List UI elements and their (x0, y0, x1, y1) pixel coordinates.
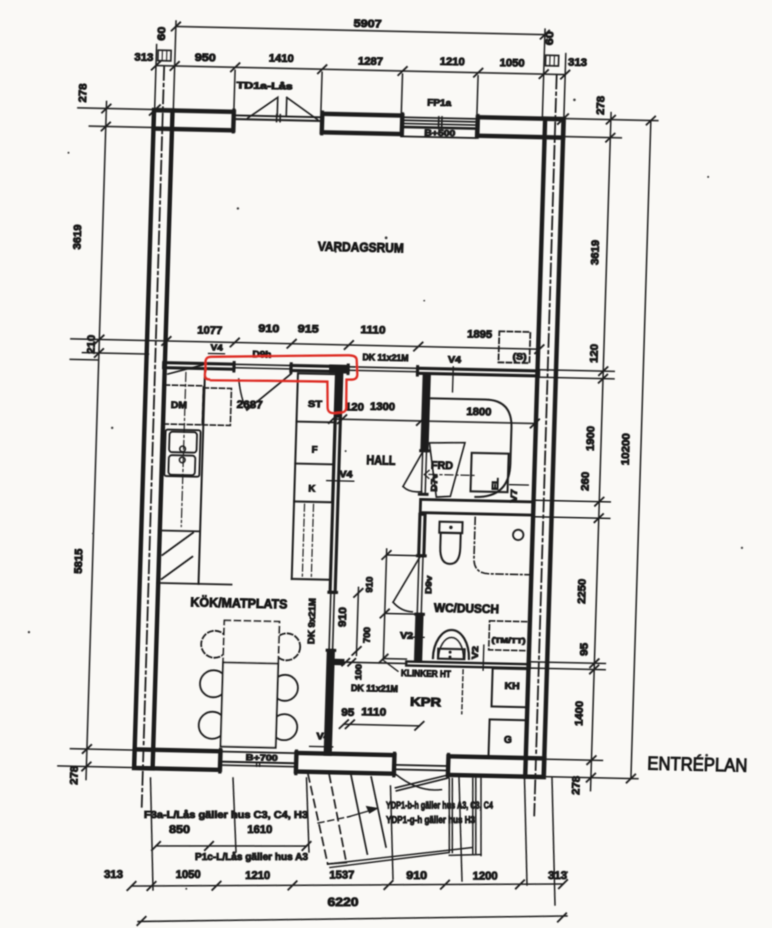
svg-text:DK 11x21M: DK 11x21M (362, 352, 408, 363)
svg-text:1900: 1900 (585, 426, 598, 451)
svg-text:1050: 1050 (176, 869, 201, 881)
svg-text:2687: 2687 (236, 399, 262, 412)
svg-text:95: 95 (341, 707, 354, 719)
svg-text:1200: 1200 (473, 871, 498, 883)
svg-text:F: F (311, 445, 317, 456)
svg-text:(TM/TT): (TM/TT) (491, 635, 526, 645)
svg-text:B+700: B+700 (246, 752, 279, 763)
svg-text:915: 915 (298, 323, 319, 335)
svg-text:V4: V4 (316, 731, 329, 741)
svg-text:KH: KH (504, 681, 519, 691)
svg-text:FP1a: FP1a (427, 98, 452, 110)
svg-text:3619: 3619 (72, 224, 85, 249)
svg-text:100: 100 (353, 664, 363, 681)
svg-text:1537: 1537 (329, 870, 354, 882)
svg-text:V4: V4 (339, 469, 352, 479)
svg-text:1110: 1110 (360, 324, 385, 337)
svg-text:278: 278 (570, 776, 583, 795)
svg-text:850: 850 (169, 824, 190, 836)
svg-text:60: 60 (544, 31, 556, 45)
svg-text:1300: 1300 (370, 401, 395, 414)
svg-text:1210: 1210 (245, 870, 270, 882)
svg-text:V7: V7 (509, 489, 519, 503)
svg-text:313: 313 (568, 57, 587, 69)
svg-text:1077: 1077 (197, 325, 222, 338)
svg-text:210: 210 (85, 335, 98, 354)
svg-text:1287: 1287 (358, 56, 383, 69)
svg-text:FRD: FRD (431, 460, 453, 472)
svg-text:313: 313 (548, 870, 567, 882)
svg-text:KÖK/MATPLATS: KÖK/MATPLATS (190, 594, 288, 611)
svg-text:910: 910 (337, 607, 350, 627)
svg-text:V2: V2 (400, 630, 413, 640)
svg-text:V4: V4 (211, 342, 224, 352)
svg-text:1210: 1210 (440, 56, 465, 69)
svg-text:2250: 2250 (576, 579, 589, 604)
svg-text:TD1a-Lås: TD1a-Lås (236, 80, 292, 92)
svg-text:1050: 1050 (499, 57, 524, 70)
svg-text:VARDAGSRUM: VARDAGSRUM (318, 239, 404, 256)
svg-text:ENTRÉPLAN: ENTRÉPLAN (647, 753, 748, 775)
svg-text:DK 9x21M: DK 9x21M (306, 598, 317, 644)
svg-text:B+500: B+500 (424, 128, 456, 139)
svg-text:60: 60 (156, 27, 168, 41)
svg-text:DM: DM (171, 400, 187, 411)
svg-text:F3a-L/Lås gäller hus C3, C4, H: F3a-L/Lås gäller hus C3, C4, H3 (144, 809, 308, 821)
svg-text:K: K (308, 484, 315, 495)
svg-text:D9v: D9v (424, 575, 434, 594)
svg-text:EL: EL (491, 478, 500, 490)
svg-text:950: 950 (195, 52, 216, 64)
svg-text:120: 120 (588, 344, 601, 363)
svg-text:1110: 1110 (361, 706, 386, 719)
svg-text:1800: 1800 (466, 406, 491, 419)
svg-text:1400: 1400 (573, 701, 586, 726)
svg-text:1610: 1610 (247, 824, 272, 836)
svg-text:WC/DUSCH: WC/DUSCH (434, 601, 499, 616)
svg-text:G: G (504, 735, 512, 746)
svg-text:5907: 5907 (353, 18, 381, 31)
svg-text:P1c-L/Lås gäller hus A3: P1c-L/Lås gäller hus A3 (195, 851, 308, 863)
svg-text:1410: 1410 (269, 53, 294, 66)
svg-text:10200: 10200 (620, 433, 633, 465)
svg-text:1895: 1895 (467, 329, 492, 342)
svg-text:ST: ST (308, 399, 323, 410)
svg-text:313: 313 (104, 869, 123, 881)
svg-text:700: 700 (362, 627, 373, 643)
svg-text:D9h: D9h (252, 349, 271, 359)
svg-text:YDP1-g-h gäller hus H3: YDP1-g-h gäller hus H3 (386, 815, 475, 826)
svg-text:5815: 5815 (73, 549, 86, 574)
svg-text:3619: 3619 (589, 240, 602, 265)
svg-text:KLINKER HT: KLINKER HT (401, 668, 451, 680)
svg-text:D7v: D7v (430, 473, 440, 492)
svg-text:HALL: HALL (366, 453, 396, 468)
svg-text:6220: 6220 (328, 895, 359, 909)
svg-text:DK 11x21M: DK 11x21M (351, 683, 398, 694)
svg-text:95: 95 (579, 643, 591, 656)
svg-text:910: 910 (406, 870, 427, 882)
svg-text:KPR: KPR (410, 695, 442, 710)
svg-text:910: 910 (364, 577, 375, 593)
svg-text:YDP1-b-h gäller hus A3, C3, C4: YDP1-b-h gäller hus A3, C3, C4 (386, 801, 493, 812)
svg-text:313: 313 (134, 52, 153, 64)
svg-text:278: 278 (77, 83, 90, 102)
svg-text:278: 278 (595, 96, 608, 115)
svg-text:278: 278 (68, 766, 81, 785)
svg-text:910: 910 (258, 323, 279, 335)
svg-text:260: 260 (580, 472, 593, 491)
svg-text:V4: V4 (448, 355, 461, 365)
svg-text:(S): (S) (512, 352, 526, 362)
svg-text:120: 120 (345, 401, 364, 413)
svg-text:V2: V2 (470, 646, 480, 660)
